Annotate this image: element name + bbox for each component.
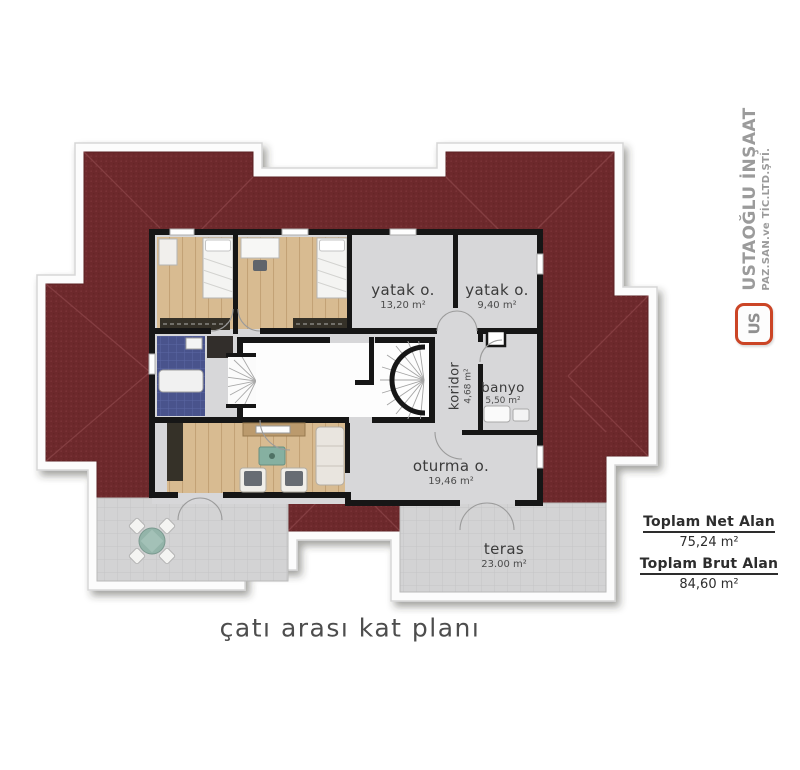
logo-monogram: US (745, 314, 763, 335)
room-name: yatak o. (371, 283, 434, 299)
room-area: 9,40 m² (465, 301, 528, 312)
room-name: koridor (448, 362, 462, 410)
bed-icon-2 (317, 238, 347, 298)
room-area: 5,50 m² (481, 397, 525, 406)
bed-icon-1 (203, 238, 233, 298)
room-label-oturma: oturma o. 19,46 m² (413, 459, 489, 487)
terrace-left (97, 498, 288, 581)
company-name: USTAOĞLU İNŞAAT (740, 107, 760, 290)
room-label-yatak-1: yatak o. 13,20 m² (371, 283, 434, 311)
room-area: 4,68 m² (464, 362, 473, 410)
room-area: 13,20 m² (371, 301, 434, 312)
room-label-koridor: koridor 4,68 m² (448, 362, 473, 410)
room-name: teras (481, 542, 527, 558)
room-name: oturma o. (413, 459, 489, 475)
room-name: yatak o. (465, 283, 528, 299)
room-area: 23.00 m² (481, 560, 527, 571)
stairwell (237, 336, 435, 424)
room-label-banyo: banyo 5,50 m² (481, 381, 525, 407)
room-area: 19,46 m² (413, 477, 489, 488)
floor-plan-page: yatak o. 13,20 m² yatak o. 9,40 m² korid… (0, 0, 800, 770)
net-area-value: 75,24 m² (631, 535, 787, 550)
brut-area-value: 84,60 m² (631, 577, 787, 592)
room-label-yatak-2: yatak o. 9,40 m² (465, 283, 528, 311)
company-logo-icon: US (735, 303, 773, 345)
net-area-label: Toplam Net Alan (643, 514, 775, 533)
brut-area-label: Toplam Brut Alan (640, 556, 778, 575)
area-summary: Toplam Net Alan 75,24 m² Toplam Brut Ala… (631, 511, 787, 595)
company-logo-text: USTAOĞLU İNŞAAT PAZ.SAN.ve TİC.LTD.ŞTİ. (740, 107, 772, 290)
company-subtitle: PAZ.SAN.ve TİC.LTD.ŞTİ. (761, 107, 772, 290)
small-stair (226, 353, 256, 408)
plan-title: çatı arası kat planı (220, 614, 481, 643)
floor-plan-drawing (0, 0, 800, 770)
room-label-teras: teras 23.00 m² (481, 542, 527, 570)
room-name: banyo (481, 381, 525, 395)
